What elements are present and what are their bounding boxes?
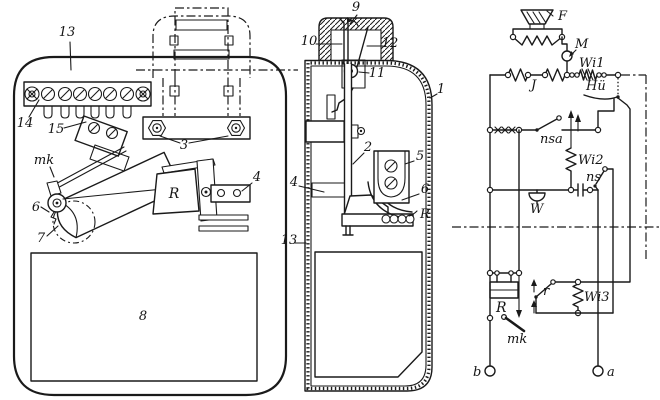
circuit-label-mk: mk [507,332,527,347]
terminal-a [593,366,603,376]
rod-2 [345,64,352,215]
switch-mk [487,315,524,331]
circuit-label-Hu: Hü [585,79,606,94]
circuit-label-b: b [473,365,481,380]
front-label-4: 4 [252,170,261,185]
side-label-4: 4 [289,175,298,190]
circuit-label-J: J [528,78,537,93]
switch-nsa [487,116,600,133]
circuit-diagram-panel: F M Wi1 J Hü nsa Wi2 ns W R r Wi3 mk b a [452,9,659,380]
cylinder [306,95,365,142]
circuit-label-r: r [543,284,550,299]
circuit-label-W: W [530,202,545,217]
terminal-lugs [44,106,131,118]
mounting-bar-3 [143,117,250,139]
motor-M [562,37,576,75]
resistor-Wi2 [566,148,576,190]
front-label-8: 8 [139,309,147,324]
side-label-1: 1 [437,82,445,97]
phantom-mount [136,8,298,116]
inner-plate [315,252,422,377]
horn-F [510,10,564,45]
bracket-4 [211,185,250,202]
side-label-9: 9 [352,0,360,15]
front-label-13: 13 [59,25,76,40]
front-label-6: 6 [32,200,40,215]
front-label-7: 7 [37,231,46,246]
front-label-R: R [168,186,180,202]
side-label-10: 10 [301,34,318,49]
contact-block-15 [75,116,129,171]
guide-bracket-5 [374,151,409,203]
circuit-label-R: R [495,300,507,316]
side-label-2: 2 [363,140,372,155]
front-label-3: 3 [180,138,188,153]
circuit-label-Wi2: Wi2 [578,153,604,168]
relay-coil-R [487,270,521,298]
circuit-label-Wi1: Wi1 [579,56,605,71]
circuit-label-Wi3: Wi3 [584,290,610,305]
side-label-5: 5 [416,149,424,164]
side-label-13: 13 [281,233,298,248]
rod-stub [343,226,353,235]
side-label-11: 11 [369,66,386,81]
terminal-screw-end-left [25,87,39,101]
release-arrows [568,110,581,148]
side-view-panel: 9 10 12 11 1 2 5 4 6 R 13 [281,0,445,391]
circuit-label-M: M [574,37,589,52]
patent-figure-svg: R 13 14 15 mk 3 4 6 7 8 [0,0,660,400]
front-label-15: 15 [48,122,65,137]
terminal-b [485,366,495,376]
front-view-panel: R 13 14 15 mk 3 4 6 7 8 [14,8,298,395]
side-label-6: 6 [421,182,429,197]
circuit-label-ns: ns [586,170,601,185]
circuit-label-a: a [607,365,615,380]
side-label-R: R [419,207,430,222]
terminal-screw-end-right [136,87,150,101]
circuit-label-nsa: nsa [540,132,563,147]
front-label-mk: mk [34,153,54,168]
technical-drawing: R 13 14 15 mk 3 4 6 7 8 [0,0,660,400]
circuit-label-F: F [557,9,568,24]
terminal-strip [24,82,151,118]
side-label-12: 12 [382,36,399,51]
front-label-14: 14 [17,116,34,131]
